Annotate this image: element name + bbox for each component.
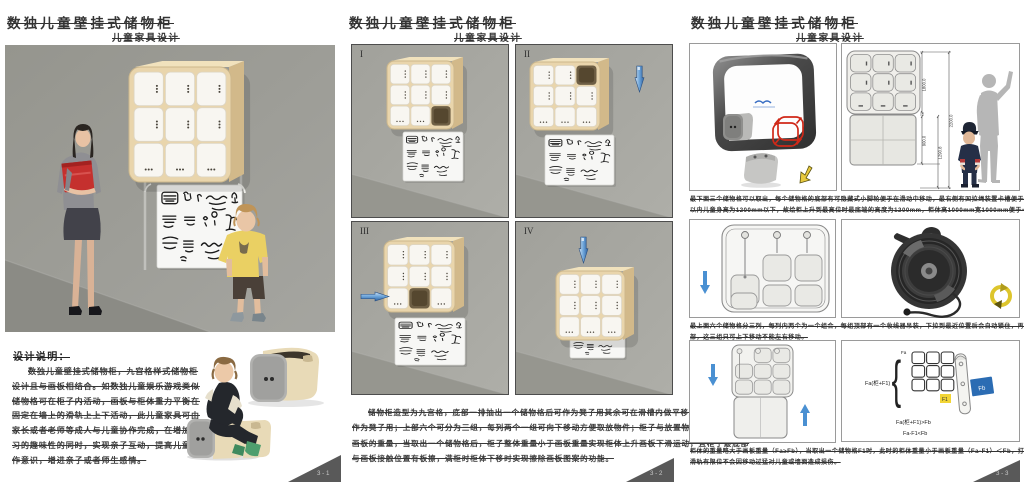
svg-text:1290.8: 1290.8 (938, 146, 943, 159)
svg-text:Fa(柜+F1): Fa(柜+F1) (865, 379, 890, 387)
svg-text:3 - 2: 3 - 2 (650, 470, 663, 477)
svg-text:II: II (524, 49, 530, 59)
svg-text:3 - 3: 3 - 3 (996, 470, 1009, 477)
svg-text:Fa-F1<Fb: Fa-F1<Fb (903, 431, 927, 437)
svg-text:III: III (360, 226, 369, 236)
svg-text:1800.0: 1800.0 (922, 78, 927, 91)
svg-text:2200.0: 2200.0 (949, 114, 954, 127)
svg-text:900.0: 900.0 (922, 135, 927, 146)
svg-text:Fa: Fa (901, 350, 907, 355)
svg-text:I: I (360, 49, 363, 59)
svg-text:IV: IV (524, 226, 534, 236)
svg-text:Fa(柜+F1)>Fb: Fa(柜+F1)>Fb (896, 418, 931, 426)
svg-text:{: { (892, 350, 902, 408)
svg-text:F1: F1 (942, 397, 948, 403)
svg-text:3 - 1: 3 - 1 (317, 470, 330, 477)
